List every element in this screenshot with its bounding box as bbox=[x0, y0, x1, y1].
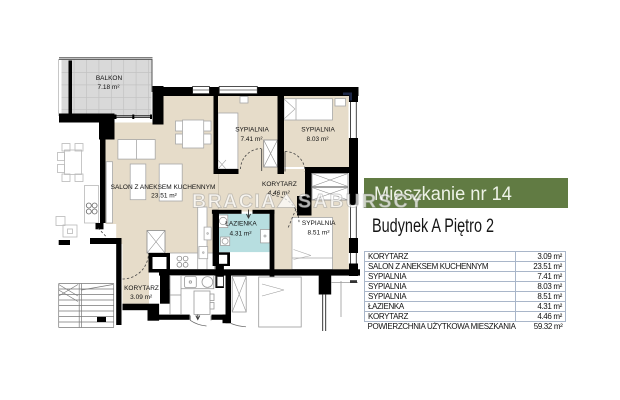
svg-text:BRACIA: BRACIA bbox=[192, 191, 277, 213]
svg-text:SABURSCY: SABURSCY bbox=[298, 191, 425, 213]
